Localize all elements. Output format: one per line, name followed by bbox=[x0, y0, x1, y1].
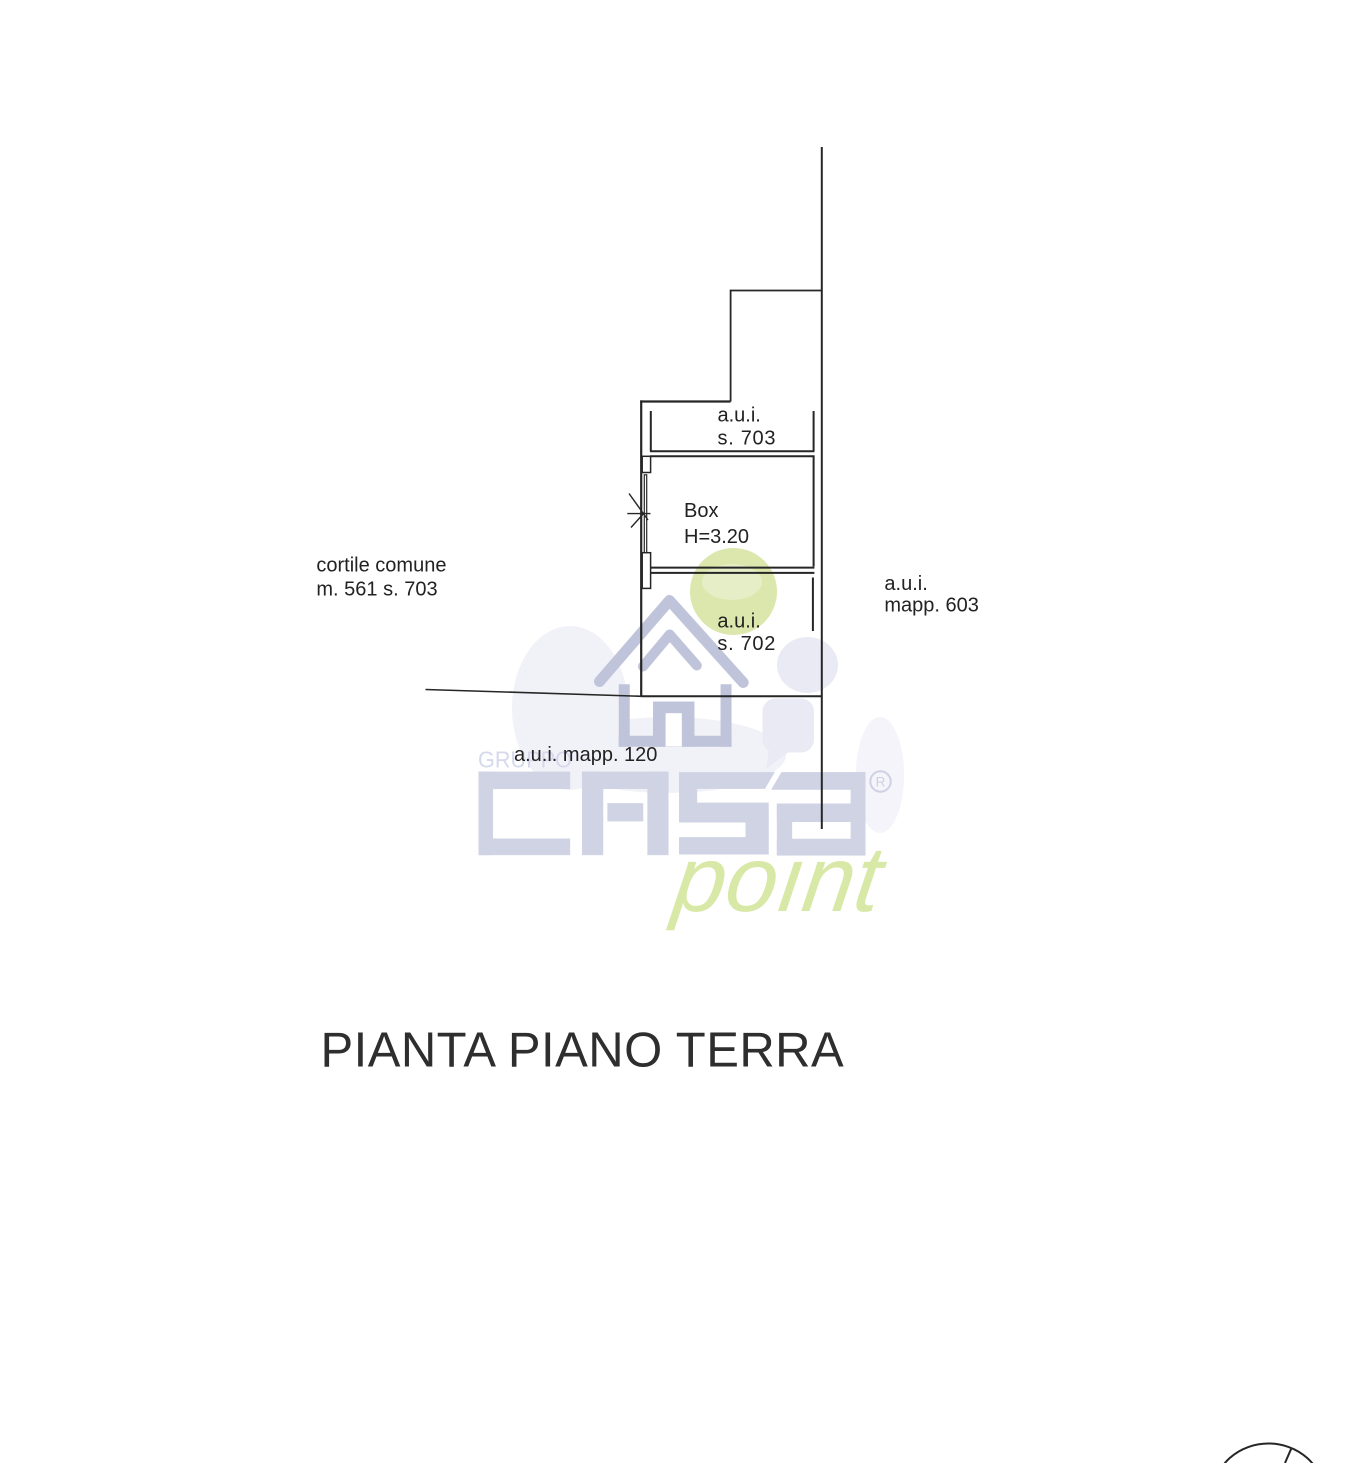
svg-text:H=3.20: H=3.20 bbox=[684, 526, 749, 548]
svg-text:Box: Box bbox=[684, 500, 718, 522]
svg-text:cortile comune: cortile comune bbox=[316, 555, 446, 577]
svg-text:a.u.i.: a.u.i. bbox=[717, 611, 760, 633]
svg-text:a.u.i. mapp. 120: a.u.i. mapp. 120 bbox=[514, 744, 657, 766]
svg-text:mapp. 603: mapp. 603 bbox=[884, 595, 979, 617]
svg-text:poınt: poınt bbox=[665, 826, 893, 930]
svg-text:R: R bbox=[876, 774, 886, 789]
svg-text:s. 703: s. 703 bbox=[718, 428, 777, 450]
svg-text:m. 561 s. 703: m. 561 s. 703 bbox=[316, 579, 437, 601]
svg-text:a.u.i.: a.u.i. bbox=[718, 405, 761, 427]
svg-text:PIANTA PIANO TERRA: PIANTA PIANO TERRA bbox=[321, 1024, 845, 1078]
svg-text:a.u.i.: a.u.i. bbox=[884, 573, 927, 595]
svg-text:s. 702: s. 702 bbox=[717, 633, 776, 655]
